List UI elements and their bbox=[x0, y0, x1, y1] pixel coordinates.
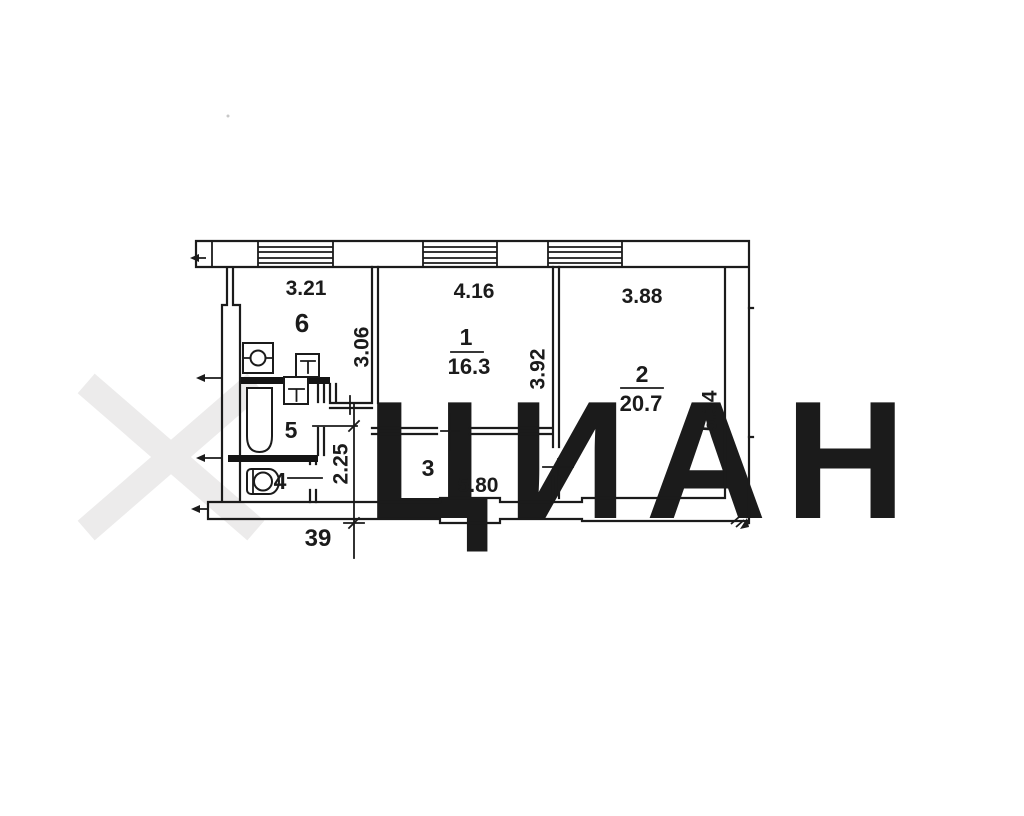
dim-kitchen-depth: 3.06 bbox=[351, 327, 374, 368]
dim-kitchen-width: 3.21 bbox=[286, 277, 327, 300]
dim-hallway-length: 5.80 bbox=[458, 474, 499, 497]
room-label-room1: 1 bbox=[460, 324, 473, 350]
room-label-bathroom: 5 bbox=[285, 417, 298, 443]
room-label-wc: 4 bbox=[274, 468, 287, 494]
room-label-hallway: 3 bbox=[422, 455, 435, 481]
plan-number: 39 bbox=[305, 525, 332, 552]
watermark: ЦИАН bbox=[96, 115, 924, 555]
dim-hallway-width: 2.25 bbox=[330, 443, 353, 484]
area-room2: 20.7 bbox=[620, 391, 663, 416]
area-room1: 16.3 bbox=[448, 354, 491, 379]
room-label-kitchen: 6 bbox=[295, 308, 309, 338]
bathtub-icon bbox=[247, 388, 272, 452]
window-icons bbox=[212, 241, 622, 267]
room-label-room2: 2 bbox=[636, 361, 649, 387]
dim-room2-depth: 5.34 bbox=[699, 390, 722, 431]
dim-room1-depth: 3.92 bbox=[527, 349, 550, 390]
floorplan-canvas: ЦИАН 3.21 6 3.06 4.16 1 16.3 3.92 bbox=[0, 0, 1024, 816]
floorplan-svg: ЦИАН 3.21 6 3.06 4.16 1 16.3 3.92 bbox=[0, 0, 1024, 816]
dim-room2-width: 3.88 bbox=[622, 285, 663, 308]
kitchen-sink-icon bbox=[243, 343, 273, 373]
dim-room1-width: 4.16 bbox=[454, 280, 495, 303]
scan-dot bbox=[227, 115, 230, 118]
